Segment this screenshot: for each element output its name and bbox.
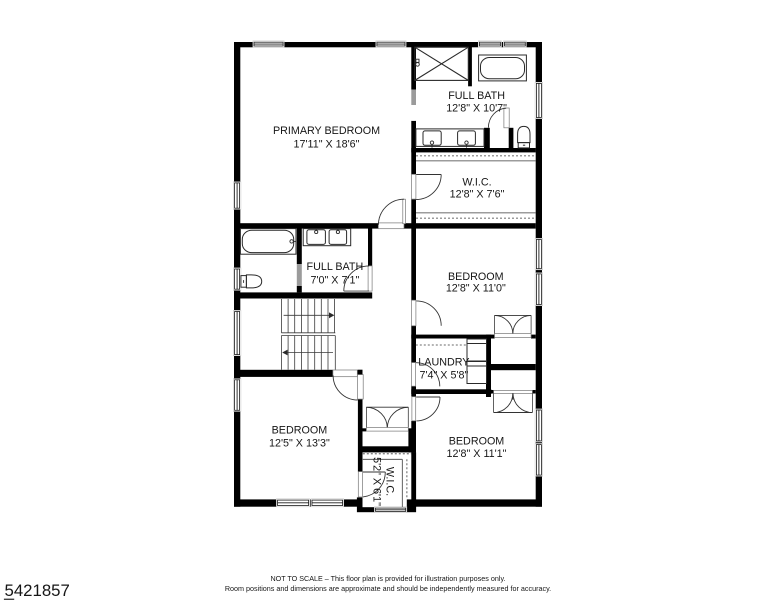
svg-text:12'8" X 11'1": 12'8" X 11'1": [447, 448, 507, 460]
svg-text:17'11" X 18'6": 17'11" X 18'6": [294, 138, 360, 150]
svg-text:FULL BATH: FULL BATH: [307, 261, 364, 273]
svg-text:PRIMARY BEDROOM: PRIMARY BEDROOM: [273, 125, 380, 137]
svg-text:FULL BATH: FULL BATH: [448, 90, 505, 102]
svg-text:BEDROOM: BEDROOM: [448, 271, 504, 283]
svg-text:BEDROOM: BEDROOM: [449, 436, 505, 448]
svg-text:12'8" X 7'6": 12'8" X 7'6": [450, 189, 505, 201]
svg-text:BEDROOM: BEDROOM: [272, 424, 328, 436]
svg-text:5421857: 5421857: [5, 581, 70, 600]
svg-text:LAUNDRY: LAUNDRY: [418, 356, 469, 368]
svg-text:NOT TO SCALE – This floor plan: NOT TO SCALE – This floor plan is provid…: [270, 574, 505, 583]
svg-text:W.I.C.: W.I.C.: [384, 467, 396, 496]
svg-text:Room positions and dimensions: Room positions and dimensions are approx…: [225, 584, 551, 593]
svg-text:12'8" X 11'0": 12'8" X 11'0": [446, 283, 506, 295]
svg-text:W.I.C.: W.I.C.: [462, 176, 491, 188]
svg-text:12'8" X 10'7": 12'8" X 10'7": [446, 102, 507, 114]
svg-text:7'4" X 5'8": 7'4" X 5'8": [420, 370, 469, 382]
svg-text:7'0" X 7'1": 7'0" X 7'1": [311, 275, 360, 287]
svg-text:12'5" X 13'3": 12'5" X 13'3": [269, 437, 330, 449]
svg-text:5'2" X 6'1": 5'2" X 6'1": [370, 457, 382, 506]
